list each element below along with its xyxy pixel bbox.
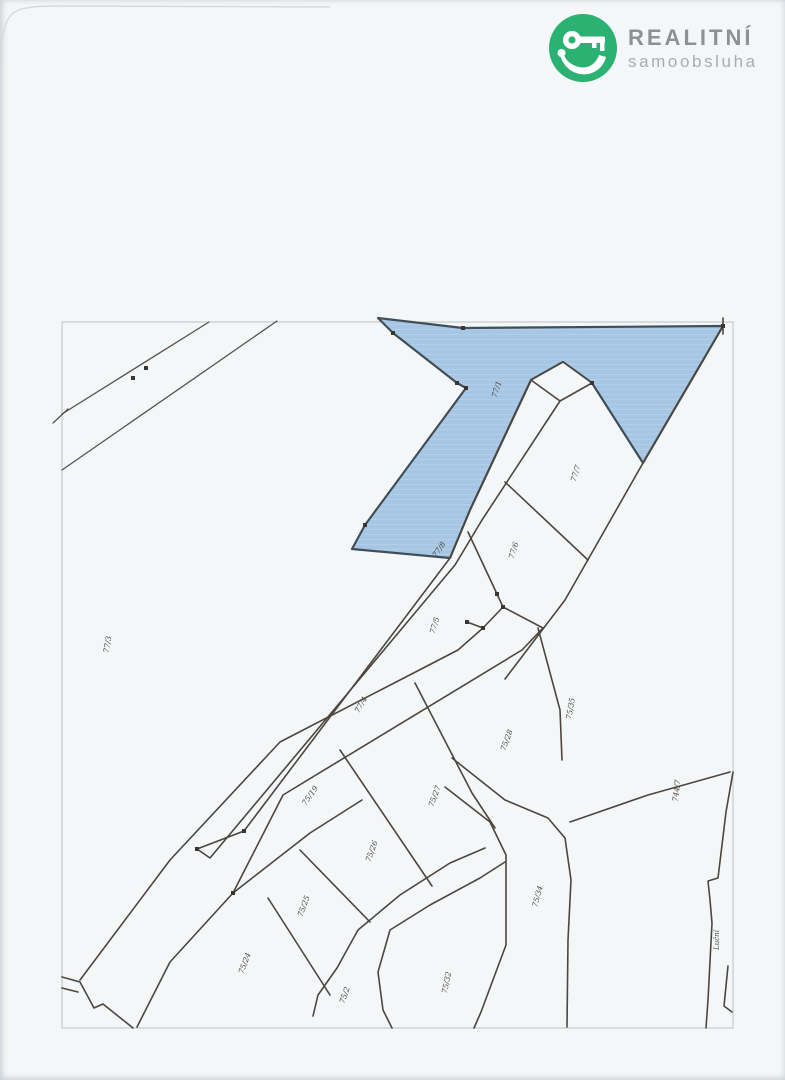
road-fork-edge [233,800,362,893]
boundary-h1 [570,772,730,822]
divider-75-27 [340,750,432,886]
scanned-page: REALITNÍ samoobsluha [0,0,785,1080]
parcel-label-75-24: 75/24 [237,951,253,975]
parcel-label-75-34: 75/34 [530,884,544,908]
parcel-label-75-35: 75/35 [564,697,577,720]
junction-jog-a [497,594,543,628]
street-label-Luční: Luční [713,929,721,951]
parcel-label-75-25: 75/25 [296,894,312,918]
corner-road-outer [452,758,571,1027]
road-tick [53,409,68,423]
curve-road-right [378,862,505,1028]
parcel-label-77-3: 77/3 [102,635,114,654]
parcel-label-75-32: 75/32 [440,971,453,994]
notch-stub [62,988,78,992]
parcel-label-744-7: 744/7 [671,779,683,802]
parcel-label-75-26: 75/26 [364,839,380,863]
divider-75-26 [300,850,370,922]
parcel-label-77-7: 77/7 [569,464,583,483]
road-upper-edge [80,628,483,980]
road-line-b [62,321,277,470]
curve-road-left [313,848,485,1016]
road-corner-notch [62,977,133,1028]
road-line-a [62,322,209,414]
parcel-label-77-5: 77/5 [428,616,442,635]
parcel-77-1-highlight[interactable] [352,318,723,558]
corner-road-inner [445,787,506,1028]
east-hook-line [724,966,732,1012]
parcel-label-75-19: 75/19 [300,784,320,807]
junction-jog-b [467,607,503,628]
parcel-label-75-2: 75/2 [338,985,352,1004]
road-lower-edge [137,628,543,1027]
parcel-label-75-27: 75/27 [427,784,443,808]
top-left-road [53,321,277,470]
parcel-label-77-6: 77/6 [507,541,521,560]
divider-75-28 [415,683,495,828]
cadastral-map: 77/177/777/677/877/577/477/375/1975/3575… [0,0,785,1080]
divider-77-6 [468,532,497,594]
strip-right-line [197,401,560,858]
jagged-east-boundary [706,772,733,1028]
divider-75-35 [538,628,562,760]
parcel-label-75-28: 75/28 [499,728,515,752]
